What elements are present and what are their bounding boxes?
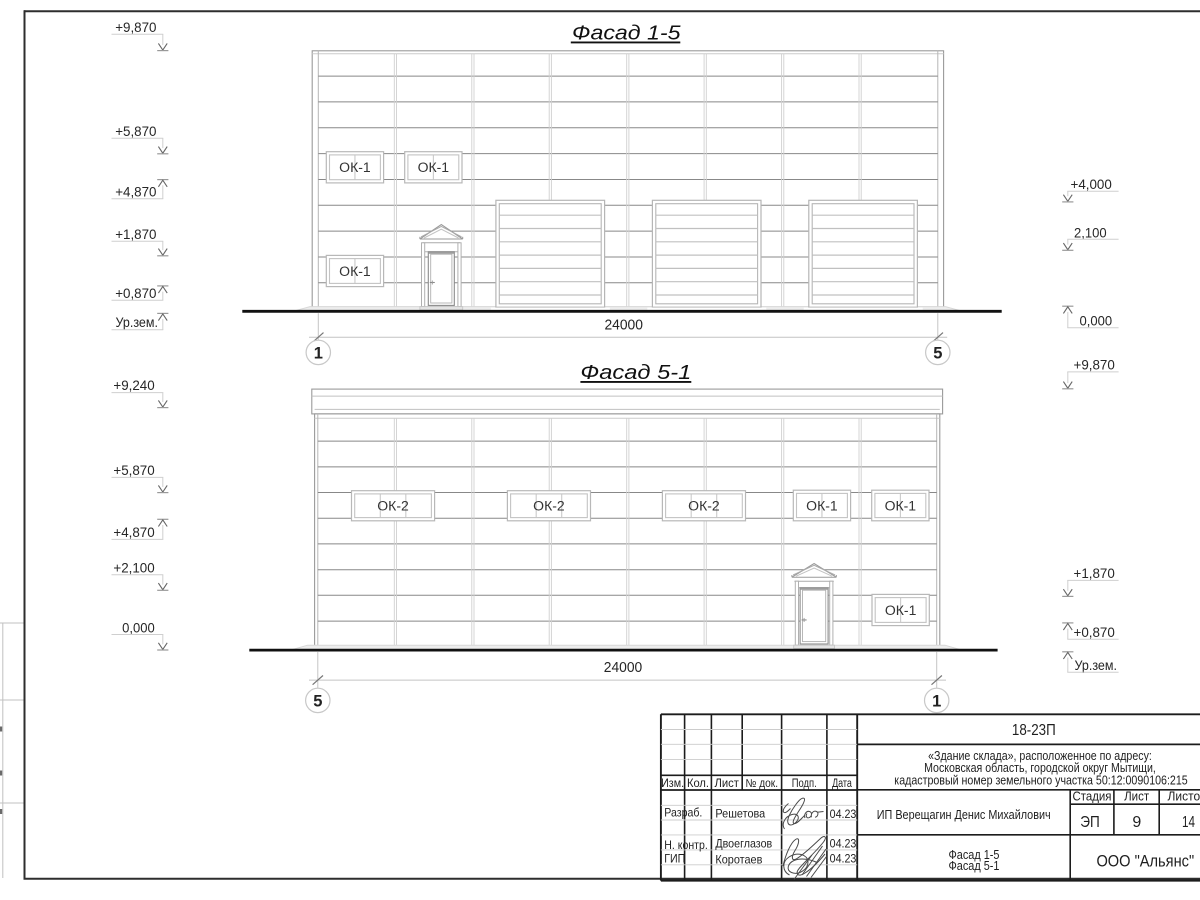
svg-text:14: 14 <box>1182 814 1195 831</box>
svg-text:Листов: Листов <box>1168 789 1200 804</box>
svg-text:Разраб.: Разраб. <box>664 806 702 820</box>
svg-text:кадастровый номер земельного у: кадастровый номер земельного участка 50:… <box>894 773 1187 787</box>
svg-text:ГИП: ГИП <box>664 852 685 866</box>
svg-text:+9,870: +9,870 <box>1074 357 1115 373</box>
svg-text:Дата: Дата <box>832 778 852 790</box>
svg-text:Стадия: Стадия <box>1073 789 1112 804</box>
svg-text:+4,870: +4,870 <box>115 183 156 199</box>
svg-text:04.23: 04.23 <box>830 852 857 866</box>
svg-text:Ур.зем.: Ур.зем. <box>116 314 159 330</box>
svg-text:+2,100: +2,100 <box>113 560 154 576</box>
svg-text:ОК-2: ОК-2 <box>533 499 565 514</box>
svg-text:Лист: Лист <box>714 778 739 790</box>
svg-text:+5,870: +5,870 <box>115 123 156 139</box>
svg-text:Фасад 5-1: Фасад 5-1 <box>580 361 691 384</box>
svg-text:ОК-1: ОК-1 <box>339 264 371 279</box>
svg-text:Фасад 5-1: Фасад 5-1 <box>949 859 1000 873</box>
svg-text:Ур.зем.: Ур.зем. <box>1075 657 1118 673</box>
svg-text:2,100: 2,100 <box>1074 224 1107 240</box>
svg-text:ОК-2: ОК-2 <box>688 499 720 514</box>
svg-text:+1,870: +1,870 <box>1074 565 1115 581</box>
svg-text:ОК-1: ОК-1 <box>885 603 917 618</box>
svg-text:0,000: 0,000 <box>122 619 155 635</box>
svg-text:+0,870: +0,870 <box>115 285 156 301</box>
svg-text:Лист: Лист <box>1124 789 1149 804</box>
svg-text:+4,000: +4,000 <box>1071 176 1112 192</box>
svg-text:+4,870: +4,870 <box>113 524 154 540</box>
svg-text:18-23П: 18-23П <box>1012 722 1056 739</box>
svg-text:Решетова: Решетова <box>715 807 765 821</box>
svg-text:ООО "Альянс": ООО "Альянс" <box>1096 851 1194 870</box>
svg-text:+9,870: +9,870 <box>115 19 156 35</box>
svg-text:9: 9 <box>1132 814 1141 831</box>
svg-text:ОК-2: ОК-2 <box>377 499 409 514</box>
svg-text:ИП Верещагин Денис Михайлович: ИП Верещагин Денис Михайлович <box>877 807 1051 822</box>
svg-text:+5,870: +5,870 <box>113 462 154 478</box>
svg-text:Изм.: Изм. <box>661 778 684 790</box>
svg-text:24000: 24000 <box>604 318 643 334</box>
svg-text:5: 5 <box>933 344 942 362</box>
svg-text:+9,240: +9,240 <box>113 377 154 393</box>
svg-text:24000: 24000 <box>604 660 643 676</box>
svg-text:1: 1 <box>932 692 941 710</box>
svg-text:Коротаев: Коротаев <box>715 852 762 866</box>
svg-text:1: 1 <box>314 344 323 362</box>
svg-text:Кол.: Кол. <box>687 778 709 790</box>
svg-text:ЭП: ЭП <box>1080 814 1100 831</box>
svg-text:04.23: 04.23 <box>830 807 857 821</box>
svg-text:Подп.: Подп. <box>792 778 817 790</box>
svg-text:Н. контр.: Н. контр. <box>664 838 708 852</box>
svg-text:ОК-1: ОК-1 <box>339 160 371 175</box>
svg-text:04.23: 04.23 <box>830 836 857 850</box>
svg-text:ОК-1: ОК-1 <box>418 160 450 175</box>
svg-text:0,000: 0,000 <box>1080 312 1113 328</box>
svg-text:Двоеглазов: Двоеглазов <box>715 837 772 851</box>
svg-text:№ док.: № док. <box>746 778 779 790</box>
svg-text:+1,870: +1,870 <box>115 226 156 242</box>
svg-text:Фасад 1-5: Фасад 1-5 <box>572 22 681 45</box>
svg-text:+0,870: +0,870 <box>1074 624 1115 640</box>
svg-text:5: 5 <box>313 692 322 710</box>
svg-text:ОК-1: ОК-1 <box>885 498 917 513</box>
svg-text:ОК-1: ОК-1 <box>806 498 838 513</box>
